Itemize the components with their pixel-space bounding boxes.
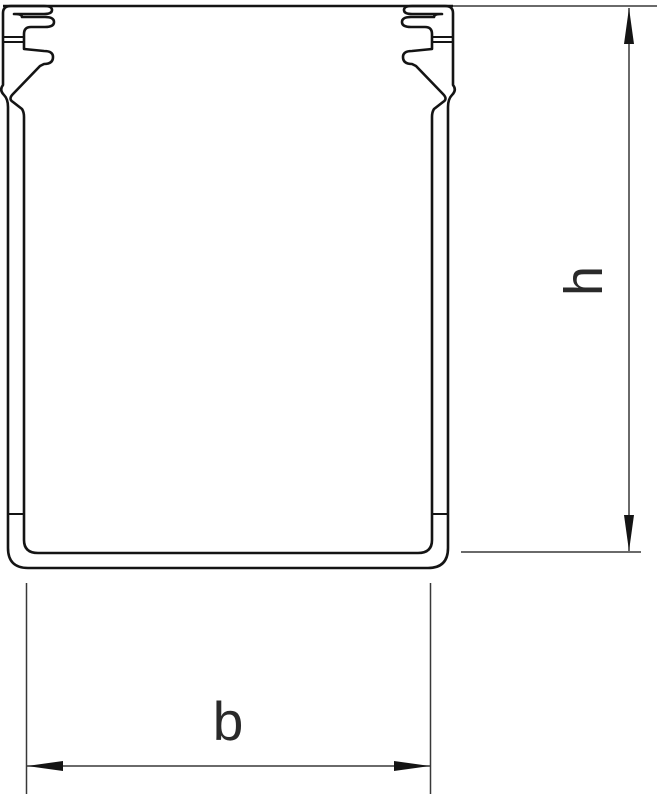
arrowhead-up-icon [624, 8, 634, 44]
wall-joint-ticks [4, 37, 452, 514]
drawing-canvas: h b [0, 0, 657, 794]
width-label: b [213, 690, 244, 752]
arrowhead-left-icon [27, 761, 63, 771]
arrowhead-down-icon [624, 515, 634, 551]
arrowhead-right-icon [394, 761, 430, 771]
duct-cross-section-drawing: h b [0, 0, 657, 794]
width-dimension: b [27, 583, 431, 794]
duct-body-outline [1, 6, 455, 568]
height-dimension: h [453, 6, 657, 552]
height-label: h [554, 266, 614, 296]
